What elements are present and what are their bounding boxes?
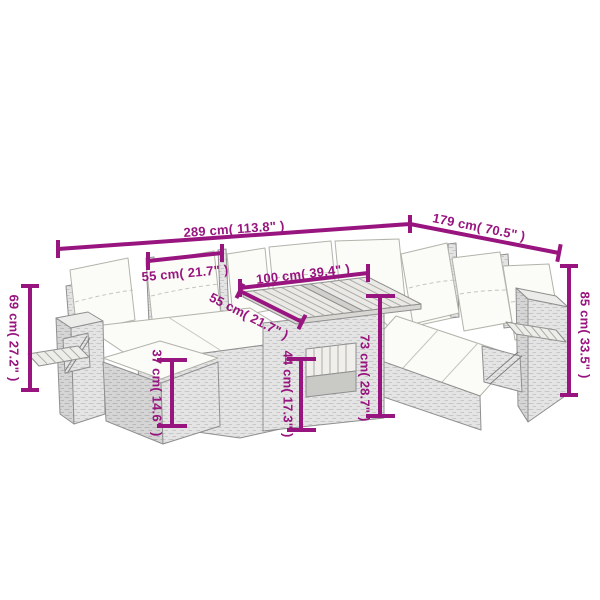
- dim-line-left-height: [21, 286, 39, 390]
- dim-label-ottoman-height: 37 cm( 14.6" ): [151, 349, 164, 436]
- dim-label-table-height: 73 cm( 28.7" ): [359, 334, 372, 421]
- dim-label-table-base-height: 44 cm( 17.3" ): [282, 350, 295, 437]
- dimension-diagram: 289 cm( 113.8" ) 179 cm( 70.5" ) 55 cm( …: [0, 0, 600, 600]
- dim-label-left-height: 69 cm( 27.2" ): [8, 294, 21, 381]
- dim-label-back-height: 85 cm( 33.5" ): [579, 291, 592, 378]
- furniture-drawing: [0, 0, 600, 600]
- armrest-front: [528, 299, 568, 422]
